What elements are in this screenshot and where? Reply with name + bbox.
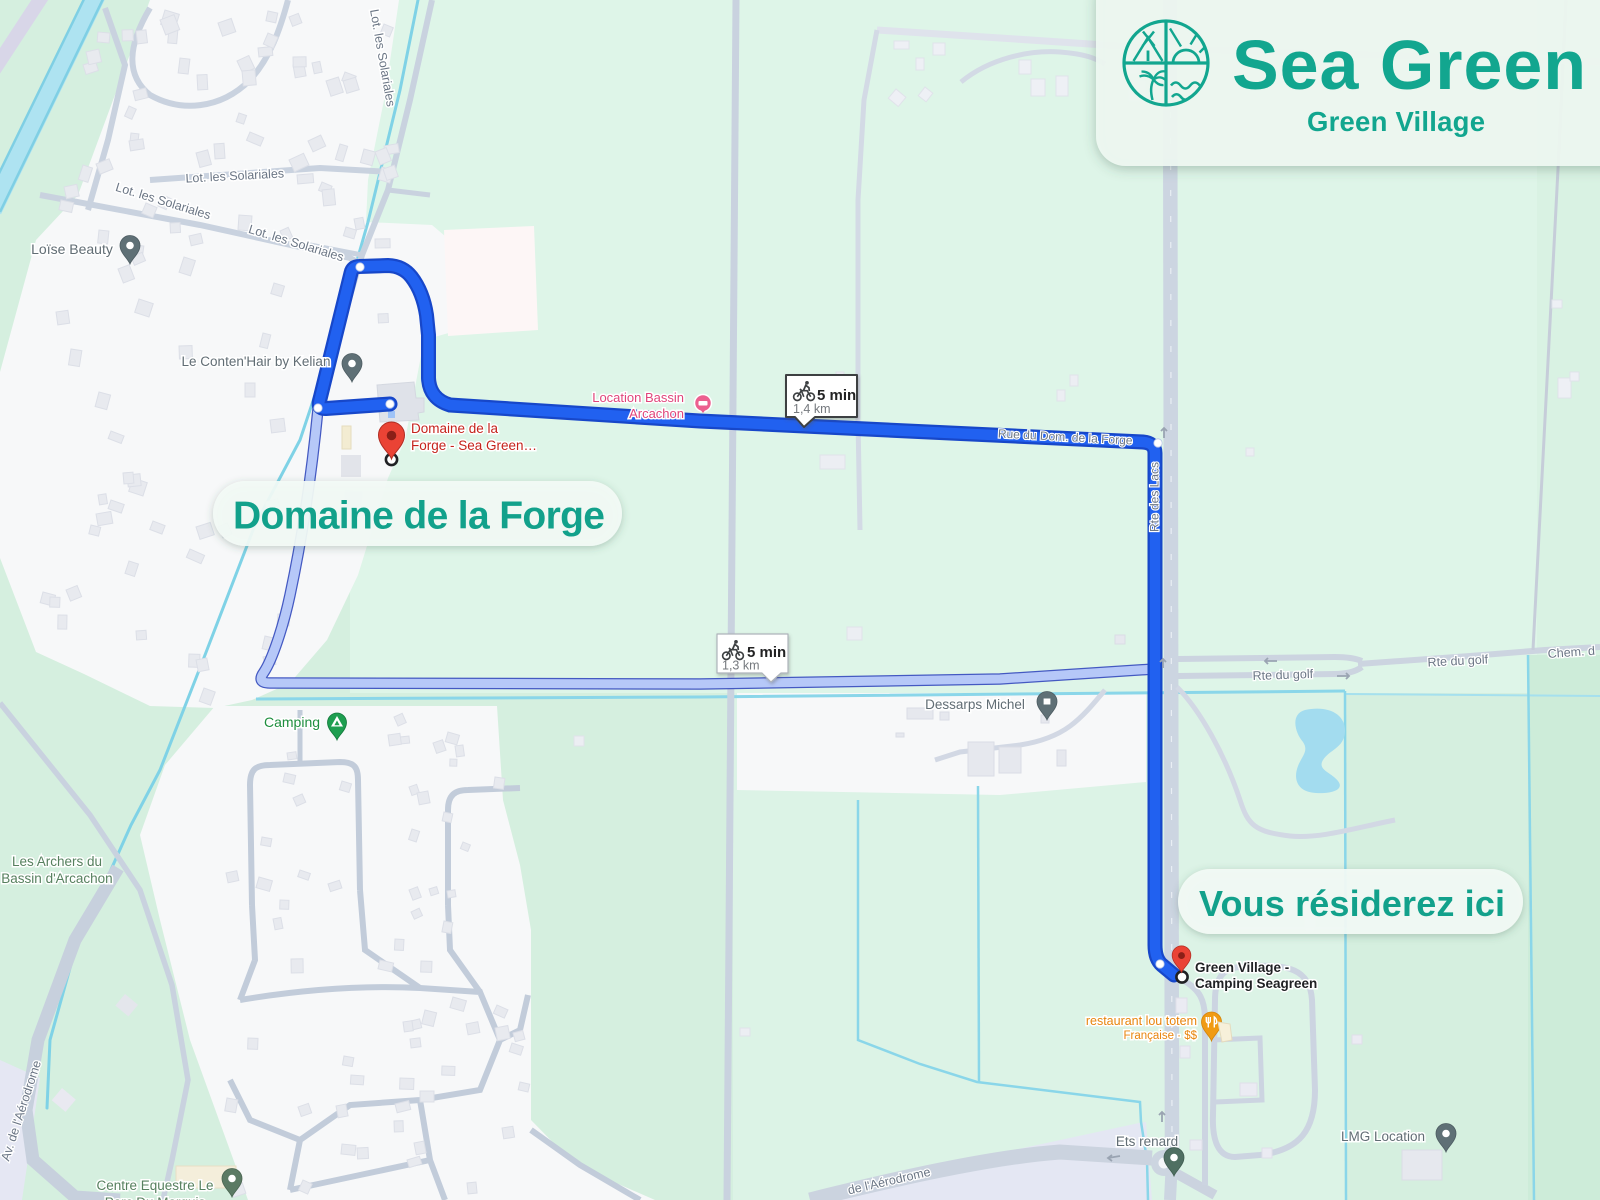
svg-text:Vous résiderez ici: Vous résiderez ici xyxy=(1199,883,1505,924)
svg-text:Française · $$: Française · $$ xyxy=(1123,1030,1197,1042)
svg-text:Dessarps Michel: Dessarps Michel xyxy=(925,697,1025,712)
svg-text:Green Village: Green Village xyxy=(1307,106,1485,137)
svg-text:Green Village -: Green Village - xyxy=(1195,960,1289,975)
svg-text:restaurant lou totem: restaurant lou totem xyxy=(1086,1014,1197,1028)
svg-text:Location Bassin: Location Bassin xyxy=(592,390,684,405)
svg-text:Loïse Beauty: Loïse Beauty xyxy=(31,241,113,257)
svg-text:Domaine de la: Domaine de la xyxy=(411,421,499,436)
svg-text:Centre Equestre Le: Centre Equestre Le xyxy=(96,1178,213,1193)
svg-text:Parc Du Marquis: Parc Du Marquis xyxy=(105,1195,206,1200)
svg-text:Le Conten'Hair by Kelian: Le Conten'Hair by Kelian xyxy=(182,354,331,369)
svg-text:1,3 km: 1,3 km xyxy=(722,659,760,673)
svg-text:Forge - Sea Green…: Forge - Sea Green… xyxy=(411,438,537,453)
svg-text:1,4 km: 1,4 km xyxy=(793,402,831,416)
svg-text:Domaine de la Forge: Domaine de la Forge xyxy=(233,495,605,538)
svg-text:Bassin d'Arcachon: Bassin d'Arcachon xyxy=(1,871,112,886)
svg-text:Sea Green: Sea Green xyxy=(1232,26,1586,104)
svg-text:Arcachon: Arcachon xyxy=(629,406,684,421)
svg-text:Camping: Camping xyxy=(264,714,320,730)
svg-text:Les Archers du: Les Archers du xyxy=(12,854,102,869)
svg-text:Ets renard: Ets renard xyxy=(1116,1134,1178,1149)
svg-text:Rte des Lacs: Rte des Lacs xyxy=(1148,462,1162,532)
svg-text:Rte du golf: Rte du golf xyxy=(1252,667,1313,683)
svg-text:LMG Location: LMG Location xyxy=(1341,1129,1425,1144)
svg-text:Camping Seagreen: Camping Seagreen xyxy=(1195,976,1317,991)
